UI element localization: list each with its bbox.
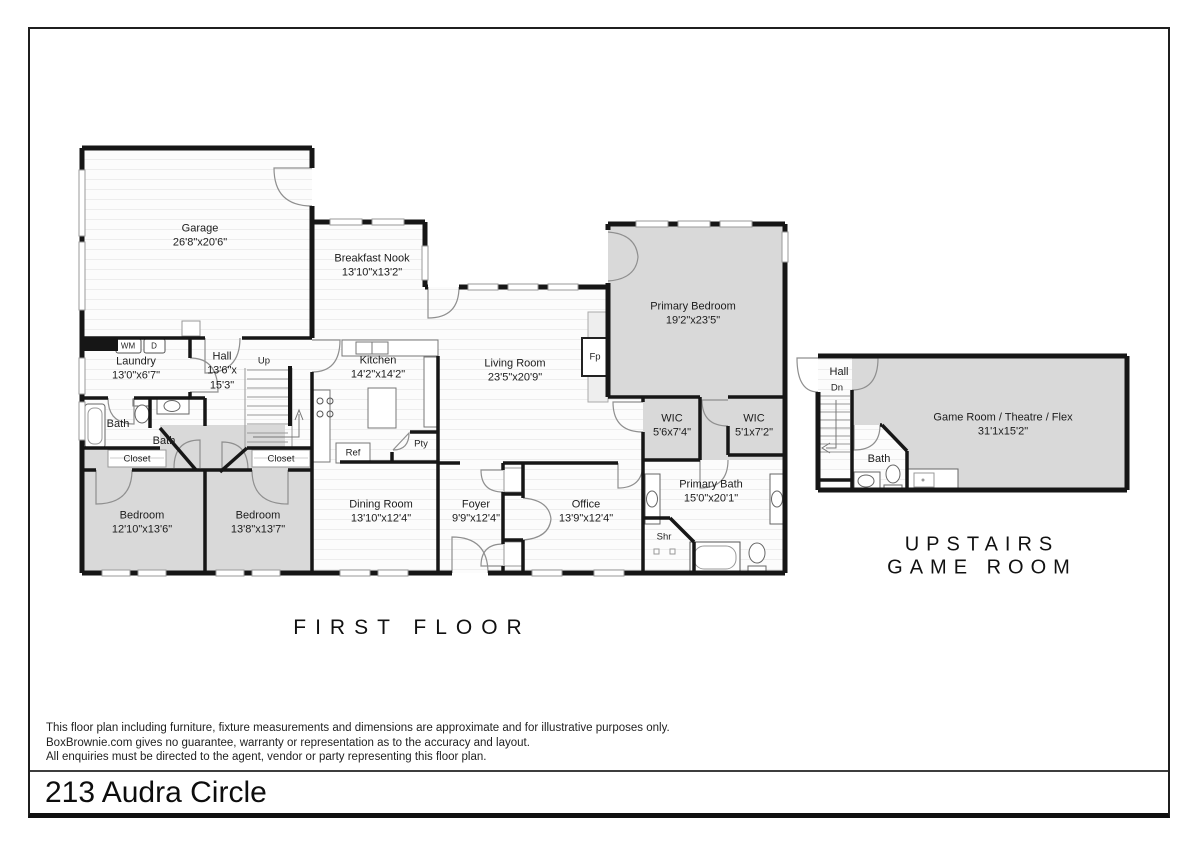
floor-plan-page: Garage 26'8"x20'6" Breakfast Nook 13'10"… (0, 0, 1200, 848)
page-border (28, 27, 1170, 818)
